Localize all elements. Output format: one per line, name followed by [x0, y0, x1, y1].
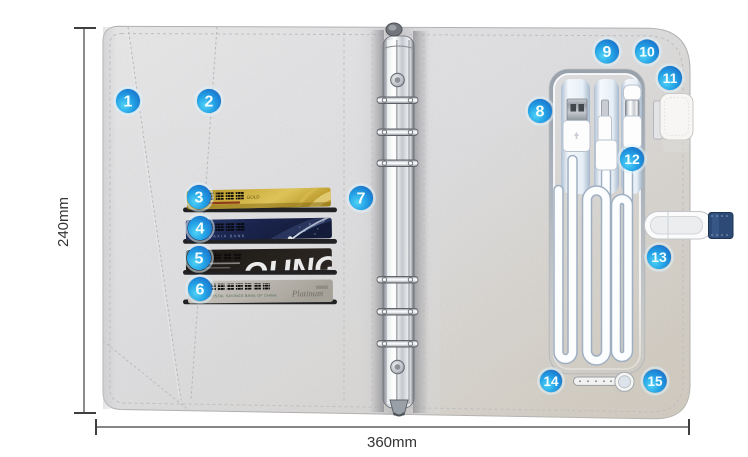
svg-text:5: 5	[195, 251, 204, 268]
svg-text:240mm: 240mm	[55, 197, 72, 247]
svg-text:10: 10	[639, 44, 655, 60]
svg-text:15: 15	[647, 374, 663, 389]
svg-text:7: 7	[357, 191, 366, 208]
svg-text:12: 12	[624, 151, 640, 167]
svg-text:13: 13	[651, 249, 667, 265]
svg-text:4: 4	[196, 221, 205, 238]
svg-text:2: 2	[205, 94, 214, 111]
svg-text:9: 9	[603, 44, 612, 61]
svg-text:8: 8	[536, 104, 545, 121]
svg-text:6: 6	[196, 282, 205, 299]
svg-text:360mm: 360mm	[367, 434, 417, 451]
svg-text:3: 3	[195, 190, 204, 207]
svg-text:11: 11	[663, 70, 678, 86]
svg-text:1: 1	[124, 94, 133, 111]
svg-text:14: 14	[543, 374, 559, 389]
